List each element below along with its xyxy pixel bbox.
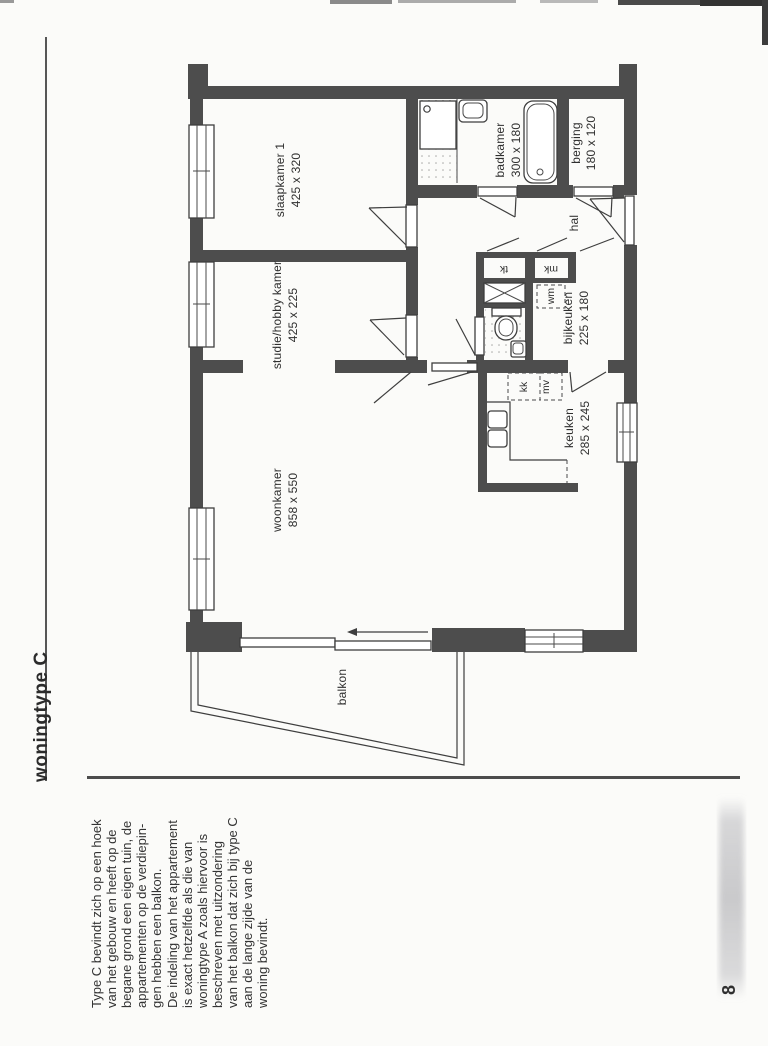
- washbasin-icon: [459, 100, 487, 122]
- label-mv: mv: [540, 379, 552, 394]
- page-canvas: woningtype C Type C bevindt zich op een …: [0, 0, 768, 1046]
- page-title: woningtype C: [31, 651, 52, 783]
- paragraph-line: appartementen op de verdiepin-: [134, 824, 149, 1008]
- paragraph-line: is exact hetzelfde als die van: [180, 842, 195, 1008]
- paragraph-line: woning bevindt.: [255, 918, 270, 1009]
- paragraph-line: woningtype A zoals hiervoor is: [195, 833, 210, 1009]
- svg-text:300 x 180: 300 x 180: [509, 123, 523, 178]
- window-studie: [189, 262, 214, 347]
- svg-text:bijkeuken: bijkeuken: [561, 292, 575, 345]
- shower-tray-icon: [420, 101, 456, 149]
- svg-text:225 x 180: 225 x 180: [577, 291, 591, 346]
- window-keuken: [617, 403, 637, 462]
- kitchen-sink-basin-2: [488, 430, 507, 447]
- label-wm: wm: [545, 288, 557, 306]
- svg-text:425 x 320: 425 x 320: [289, 153, 303, 208]
- svg-text:425 x 225: 425 x 225: [286, 288, 300, 343]
- paragraph-line: van het gebouw en heeft op de: [104, 829, 119, 1008]
- window-slaapkamer: [189, 125, 214, 218]
- svg-text:badkamer: badkamer: [493, 123, 507, 178]
- toilet-sink-icon: [511, 341, 526, 357]
- paragraph-line: aan de lange zijde van de: [240, 860, 255, 1008]
- page-number: 8: [719, 985, 739, 995]
- svg-text:berging: berging: [569, 122, 583, 163]
- column-rule-line: [87, 776, 740, 779]
- label-mk: mk: [543, 263, 558, 275]
- label-balkon: balkon: [335, 669, 349, 706]
- svg-text:858 x 550: 858 x 550: [286, 473, 300, 528]
- label-tk: tk: [499, 263, 508, 275]
- window-woonkamer-zuid: [525, 630, 583, 652]
- svg-text:woonkamer: woonkamer: [270, 468, 284, 533]
- closet-shelf-icon: [484, 283, 525, 303]
- paragraph-line: Type C bevindt zich op een hoek: [89, 819, 104, 1008]
- svg-text:studie/hobby kamer: studie/hobby kamer: [270, 261, 284, 369]
- svg-text:285 x 245: 285 x 245: [578, 401, 592, 456]
- paragraph-line: De indeling van het appartement: [165, 820, 180, 1008]
- scanned-page: woningtype C Type C bevindt zich op een …: [0, 0, 768, 1046]
- kitchen-sink-basin-1: [488, 411, 507, 428]
- label-berging: berging 180 x 120: [569, 116, 598, 171]
- paragraph-line: van het balkon dat zich bij type C: [225, 817, 240, 1008]
- label-kk: kk: [518, 381, 530, 392]
- svg-text:180 x 120: 180 x 120: [584, 116, 598, 171]
- label-hal: hal: [567, 215, 581, 232]
- paragraph-line: begane grond een eigen tuin, de: [119, 821, 134, 1008]
- svg-text:slaapkamer 1: slaapkamer 1: [273, 143, 287, 218]
- bathtub-icon: [524, 101, 557, 183]
- svg-text:keuken: keuken: [562, 408, 576, 448]
- scan-smudge: [719, 797, 744, 999]
- paragraph-line: beschreven met uitzondering: [210, 841, 225, 1008]
- paragraph-line: gen hebben een balkon.: [149, 868, 164, 1008]
- window-woonkamer: [189, 508, 214, 610]
